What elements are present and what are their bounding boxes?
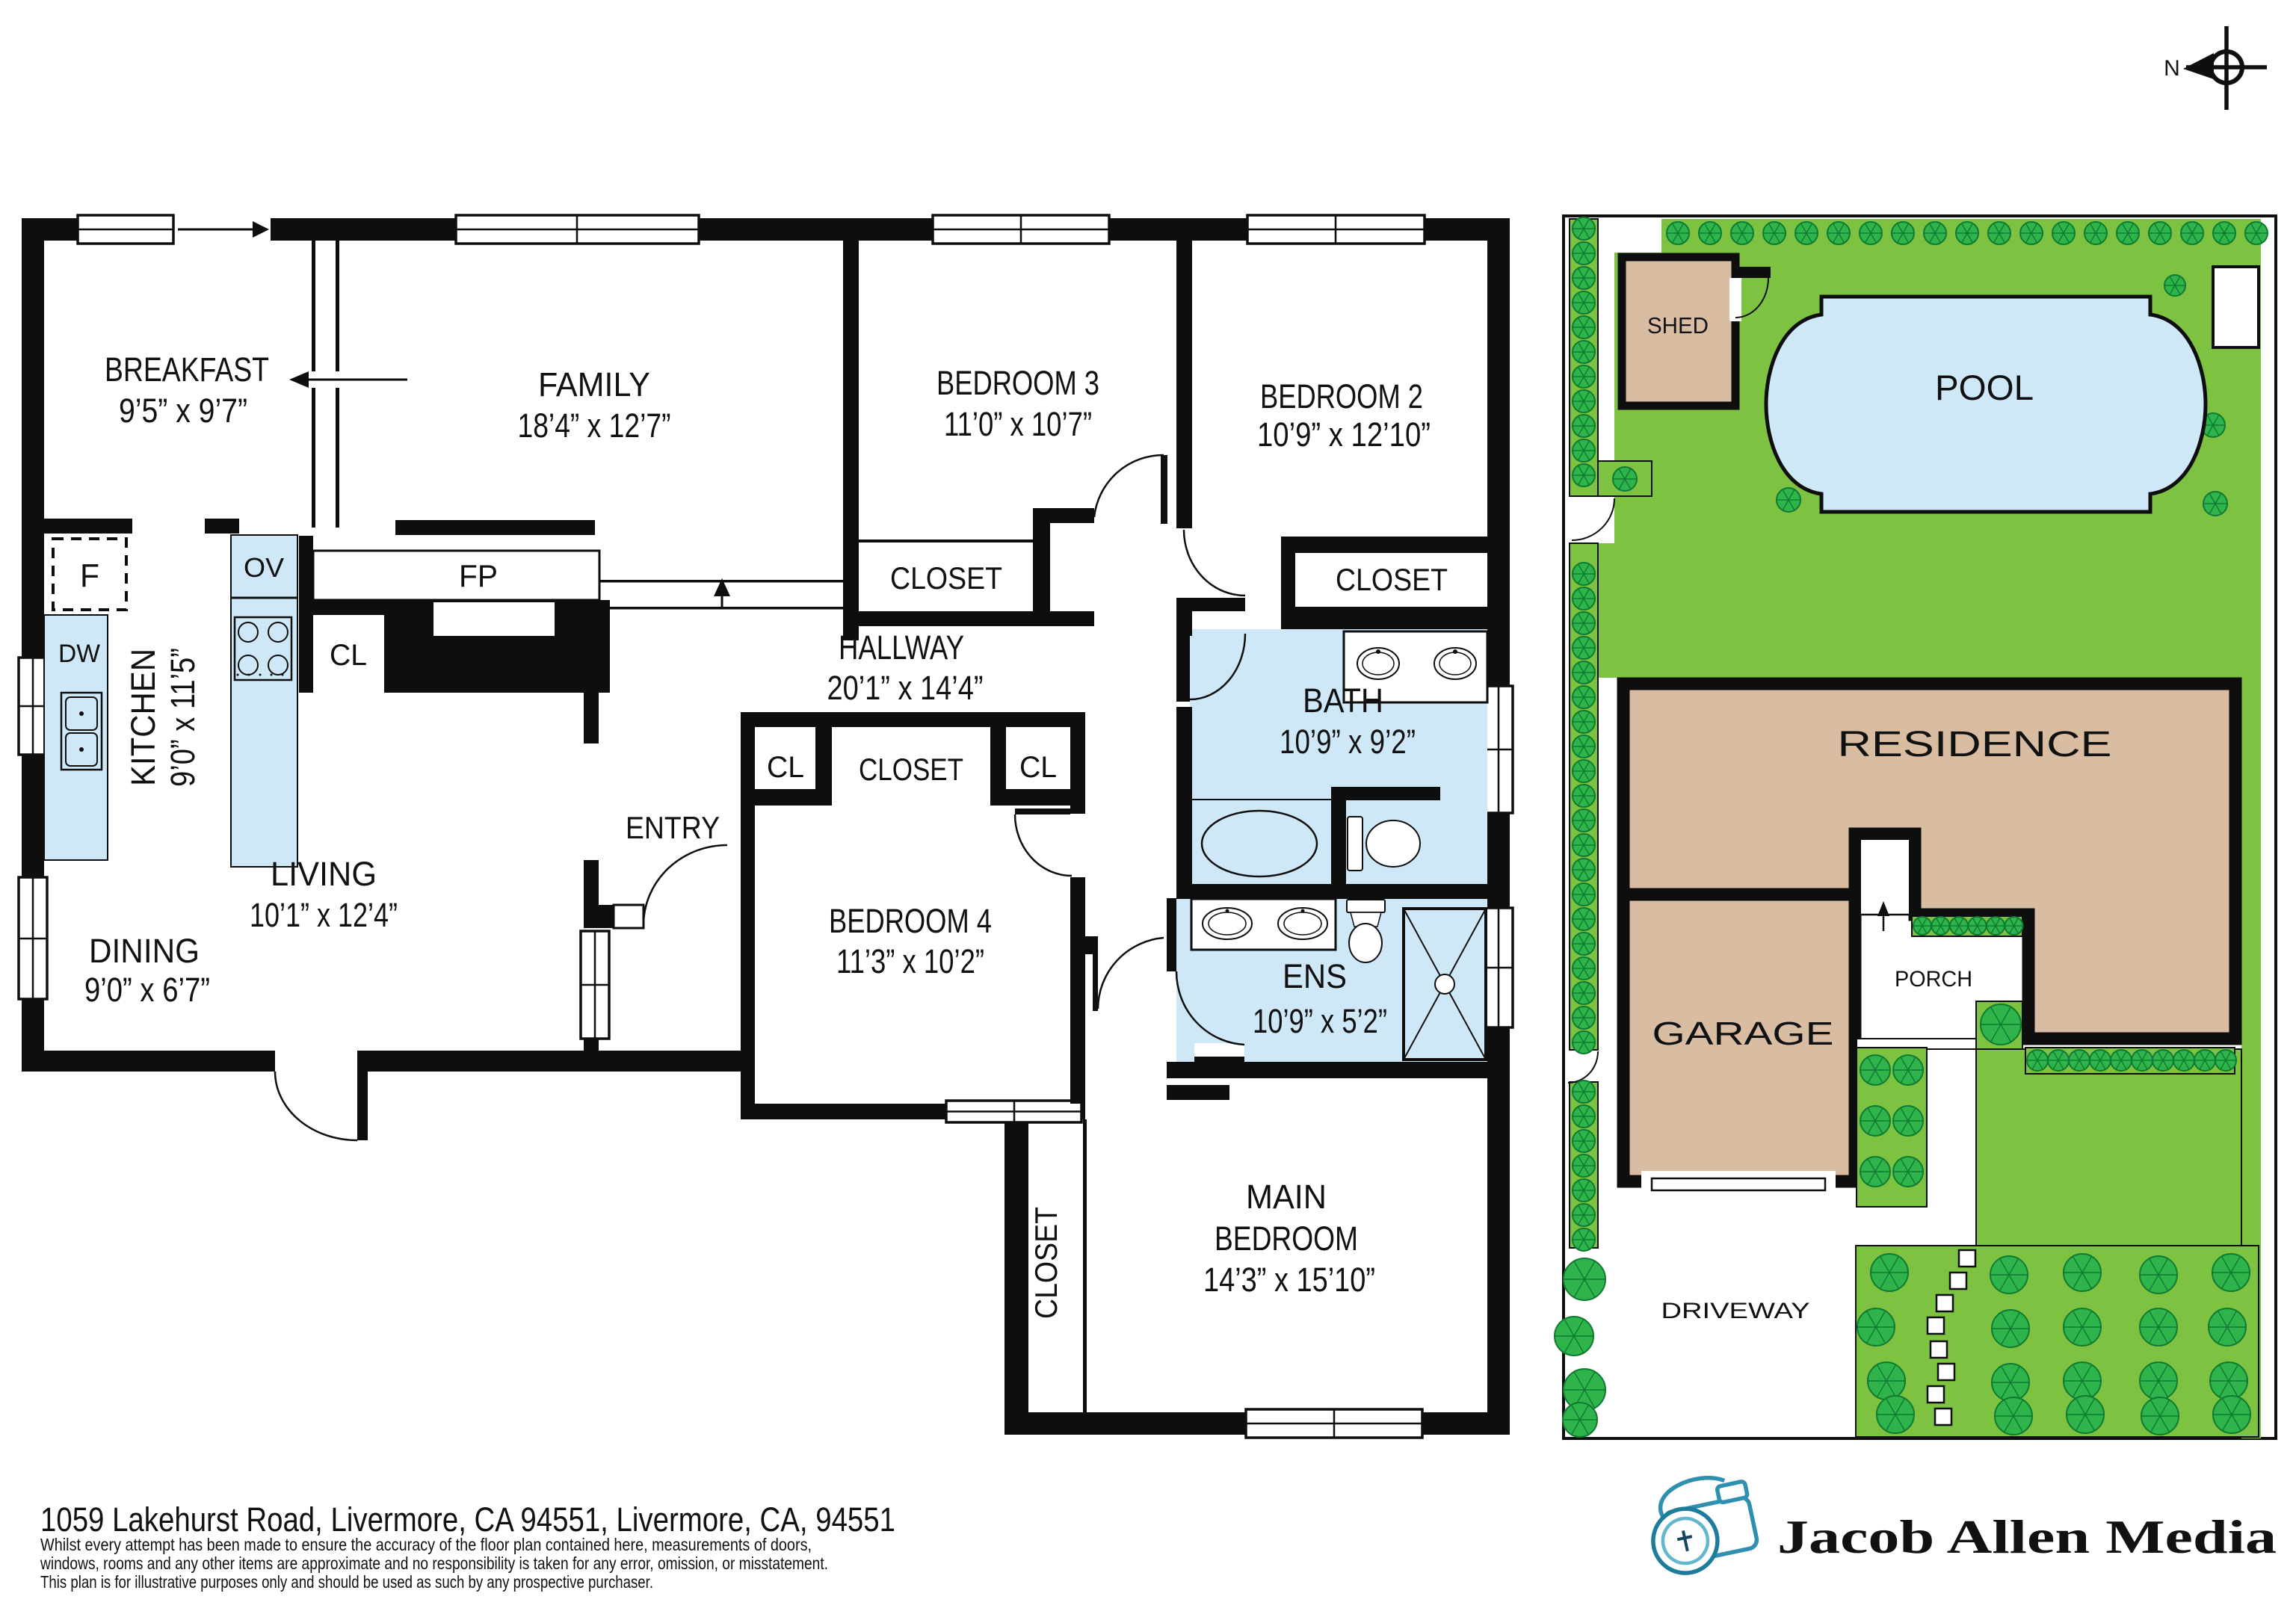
svg-text:BEDROOM 2: BEDROOM 2 xyxy=(1260,377,1423,415)
svg-text:DW: DW xyxy=(58,640,100,668)
svg-text:10’1” x 12’4”: 10’1” x 12’4” xyxy=(250,896,398,934)
svg-text:PORCH: PORCH xyxy=(1895,967,1972,992)
svg-text:9’0” x 11’5”: 9’0” x 11’5” xyxy=(164,648,202,787)
svg-text:CLOSET: CLOSET xyxy=(1336,562,1448,597)
svg-text:GARAGE: GARAGE xyxy=(1652,1015,1834,1052)
svg-text:This plan is for illustrative: This plan is for illustrative purposes o… xyxy=(40,1572,653,1592)
svg-text:10’9” x 9’2”: 10’9” x 9’2” xyxy=(1280,723,1416,761)
svg-text:10’9” x 5’2”: 10’9” x 5’2” xyxy=(1253,1002,1387,1040)
svg-text:OV: OV xyxy=(244,552,284,583)
svg-text:20’1” x 14’4”: 20’1” x 14’4” xyxy=(827,669,984,707)
svg-text:14’3” x 15’10”: 14’3” x 15’10” xyxy=(1203,1261,1375,1299)
svg-text:CL: CL xyxy=(767,751,804,784)
svg-text:CLOSET: CLOSET xyxy=(1028,1207,1064,1319)
svg-text:BEDROOM: BEDROOM xyxy=(1215,1219,1358,1258)
svg-text:CL: CL xyxy=(1019,751,1057,784)
svg-text:ENTRY: ENTRY xyxy=(626,810,720,845)
svg-text:F: F xyxy=(80,557,99,594)
svg-text:LIVING: LIVING xyxy=(271,855,377,893)
svg-text:windows, rooms and any other i: windows, rooms and any other items are a… xyxy=(40,1554,828,1573)
svg-text:MAIN: MAIN xyxy=(1246,1178,1327,1216)
svg-text:HALLWAY: HALLWAY xyxy=(839,628,964,667)
svg-text:1059 Lakehurst Road, Livermore: 1059 Lakehurst Road, Livermore, CA 94551… xyxy=(40,1500,895,1539)
svg-text:DRIVEWAY: DRIVEWAY xyxy=(1661,1299,1810,1323)
svg-text:N: N xyxy=(2164,56,2180,81)
svg-text:BREAKFAST: BREAKFAST xyxy=(105,350,269,389)
svg-text:11’0” x 10’7”: 11’0” x 10’7” xyxy=(944,405,1092,443)
svg-text:BATH: BATH xyxy=(1303,681,1383,720)
svg-text:Whilst every attempt has been: Whilst every attempt has been made to en… xyxy=(40,1535,812,1554)
svg-text:FAMILY: FAMILY xyxy=(538,365,650,404)
svg-text:FP: FP xyxy=(459,558,498,593)
svg-text:KITCHEN: KITCHEN xyxy=(124,649,162,786)
svg-text:9’0” x 6’7”: 9’0” x 6’7” xyxy=(84,971,210,1009)
svg-text:RESIDENCE: RESIDENCE xyxy=(1838,725,2112,764)
svg-text:9’5” x 9’7”: 9’5” x 9’7” xyxy=(119,392,247,430)
svg-text:SHED: SHED xyxy=(1647,312,1709,338)
svg-text:Jacob Allen Media: Jacob Allen Media xyxy=(1777,1510,2277,1563)
svg-text:CLOSET: CLOSET xyxy=(859,752,963,787)
svg-text:BEDROOM 3: BEDROOM 3 xyxy=(936,364,1099,402)
svg-text:DINING: DINING xyxy=(89,932,200,970)
svg-text:CL: CL xyxy=(330,639,367,672)
svg-text:BEDROOM 4: BEDROOM 4 xyxy=(829,902,992,940)
svg-text:11’3” x 10’2”: 11’3” x 10’2” xyxy=(836,942,984,980)
svg-text:ENS: ENS xyxy=(1283,957,1347,995)
svg-text:POOL: POOL xyxy=(1935,368,2034,407)
svg-text:CLOSET: CLOSET xyxy=(890,560,1002,596)
svg-text:18’4” x 12’7”: 18’4” x 12’7” xyxy=(518,406,671,445)
svg-text:10’9” x 12’10”: 10’9” x 12’10” xyxy=(1257,415,1431,454)
